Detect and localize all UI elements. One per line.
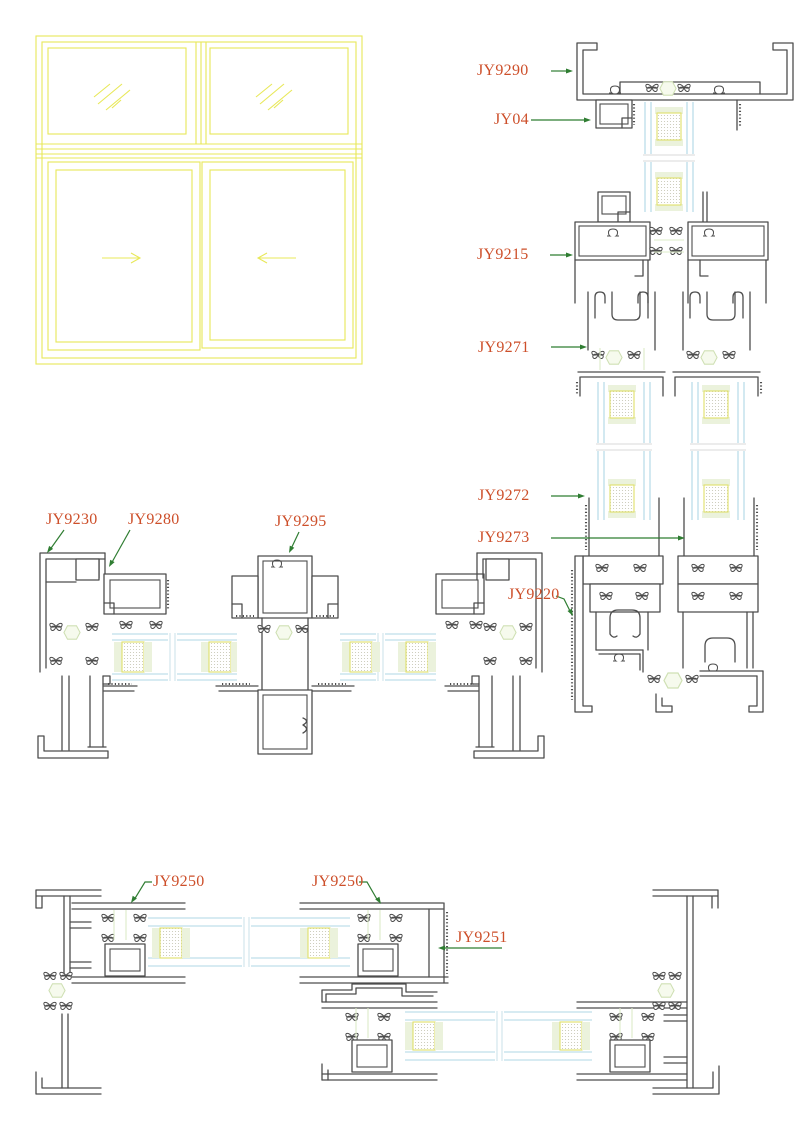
part-label-jy9250-left: JY9250 (153, 874, 205, 890)
slide-arrow-right-icon (102, 253, 140, 263)
horizontal-section-middle-drawing (38, 553, 544, 758)
part-label-jy9273: JY9273 (478, 530, 530, 546)
part-label-jy9280: JY9280 (128, 512, 180, 528)
part-label-jy9220: JY9220 (508, 587, 560, 603)
window-elevation-drawing (36, 36, 362, 364)
part-label-jy9290: JY9290 (477, 63, 529, 79)
glass-hatch-icon (256, 84, 292, 110)
part-label-jy9295: JY9295 (275, 514, 327, 530)
section-drawing (0, 0, 800, 1131)
part-label-jy9215: JY9215 (477, 247, 529, 263)
part-label-jy9230: JY9230 (46, 512, 98, 528)
slide-arrow-left-icon (258, 253, 296, 263)
cad-sheet: JY9290 JY04 JY9215 JY9271 JY9272 JY9273 … (0, 0, 800, 1131)
part-label-jy9272: JY9272 (478, 488, 530, 504)
part-label-jy04: JY04 (494, 112, 529, 128)
glass-hatch-icon (94, 84, 130, 110)
part-label-jy9271: JY9271 (478, 340, 530, 356)
part-label-jy9250-right: JY9250 (312, 874, 364, 890)
part-label-jy9251: JY9251 (456, 930, 508, 946)
vertical-section-drawing (572, 43, 793, 712)
horizontal-section-bottom-drawing (36, 890, 719, 1094)
